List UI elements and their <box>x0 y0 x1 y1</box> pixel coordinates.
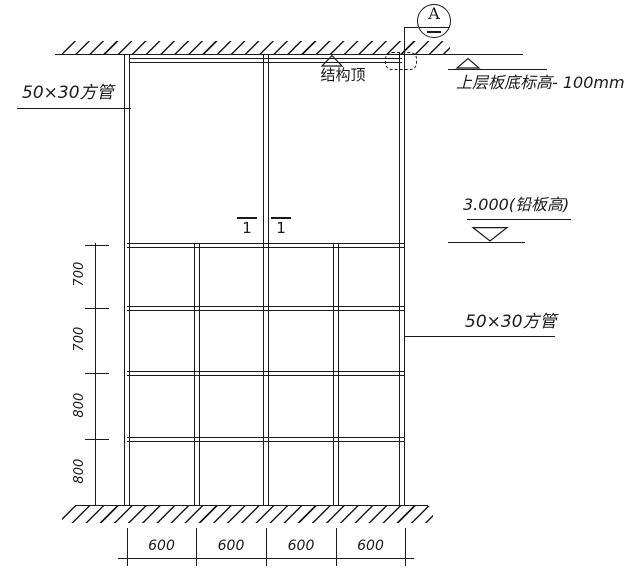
detail-bubble-divider <box>419 27 449 28</box>
shelf-rail-4 <box>127 437 405 442</box>
dim-tick <box>85 439 109 440</box>
left-tube-label: 50×30方管 <box>22 84 114 103</box>
section-mark-label: 1 <box>271 220 291 237</box>
dim-extension <box>405 528 406 566</box>
left-tube-leader <box>17 108 131 109</box>
lead-plate-elevation-label: 3.000(铅板高) <box>463 196 569 214</box>
shelf-rail-1 <box>127 243 405 248</box>
detail-bubble-letter: A <box>417 5 451 23</box>
vertical-dim-label: 700 <box>73 309 87 369</box>
upper-slab-elevation-label: 上层板底标高- 100mm <box>456 74 625 92</box>
dim-tick <box>85 245 109 246</box>
horizontal-dim-label: 600 <box>266 539 336 554</box>
vertical-dim-label: 800 <box>73 375 87 435</box>
vertical-dim-label: 700 <box>73 244 87 304</box>
horizontal-dim-label: 600 <box>127 539 196 554</box>
detail-bubble-dash <box>427 31 441 33</box>
shelf-rail-2 <box>127 306 405 311</box>
elevation-triangle-up-icon <box>456 58 480 69</box>
lead-plate-level-line <box>448 242 525 243</box>
detail-leader-horizontal <box>404 27 418 28</box>
shelf-rail-3 <box>127 371 405 376</box>
right-tube-label: 50×30方管 <box>465 313 557 332</box>
ground-hatch <box>62 506 433 523</box>
section-mark-label: 1 <box>237 220 257 237</box>
elevation-triangle-down-icon <box>472 227 508 242</box>
lead-plate-label-underline <box>467 219 571 220</box>
upper-slab-elevation-line <box>448 69 547 70</box>
dim-tick <box>85 308 109 309</box>
dim-tick <box>85 373 109 374</box>
detail-scope-box <box>385 52 417 70</box>
detail-leader-vertical <box>404 27 405 53</box>
horizontal-dim-label: 600 <box>336 539 405 554</box>
horizontal-dim-label: 600 <box>196 539 266 554</box>
structure-top-label: 结构顶 <box>316 67 370 84</box>
right-tube-leader <box>405 336 555 337</box>
vertical-dim-label: 800 <box>73 441 87 501</box>
structural-elevation-drawing: 700 700 800 800 600 600 600 600 50×30方管 … <box>0 0 635 574</box>
